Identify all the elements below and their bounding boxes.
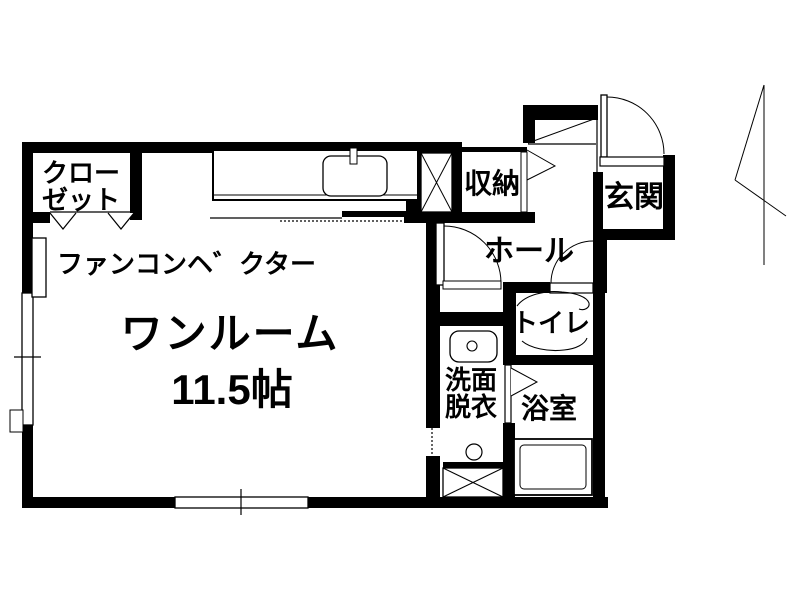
storage-label: 収納 (464, 167, 520, 199)
wall-segment (503, 355, 593, 365)
entrance-label: 玄関 (604, 180, 664, 214)
wall-segment (22, 425, 33, 508)
toilet-label: トイレ (512, 308, 590, 338)
wall-segment (22, 497, 608, 508)
faucet-icon (350, 148, 357, 164)
main-room-door-leaf (436, 223, 444, 285)
kitchen-front-bar (342, 211, 425, 217)
washroom-door (443, 281, 501, 289)
wall-segment (593, 230, 605, 508)
closet-label-line2: ゼット (42, 185, 120, 215)
entrance-threshold (600, 157, 664, 166)
fan-convector-label: ファンコンヘ゛クター (57, 249, 316, 279)
fan-convector-unit (32, 238, 46, 297)
washroom-label-line1: 洗面 (445, 365, 497, 395)
bathtub-inner (520, 445, 586, 489)
bathroom-label: 浴室 (521, 392, 577, 424)
wall-segment (593, 229, 675, 240)
wall-segment (462, 147, 527, 152)
storage-door (521, 152, 527, 212)
washbasin-drain-icon (467, 341, 477, 351)
wall-segment (523, 120, 535, 143)
wall-segment (130, 142, 142, 220)
window-left-endcap (10, 410, 23, 432)
wall-segment (593, 172, 603, 229)
refrigerator-space (421, 153, 452, 212)
entrance-door-leaf (601, 95, 607, 157)
vanity-counter-bar (433, 312, 507, 326)
closet-label-line1: クロー (42, 158, 120, 188)
wall-segment (663, 155, 675, 240)
plan-background (0, 0, 800, 600)
floor-plan-drawing: ワンルーム 11.5帖 ファンコンヘ゛クター クロー ゼット 収納 玄関 ホール… (0, 0, 800, 600)
window-left (22, 293, 33, 425)
wall-segment (443, 462, 503, 468)
washroom-label-line2: 脱衣 (445, 392, 497, 422)
bathroom-door (505, 365, 511, 423)
wall-segment (452, 153, 462, 212)
hall-label: ホール (484, 235, 574, 268)
main-room-label: ワンルーム (121, 310, 340, 357)
floor-plan-page: ワンルーム 11.5帖 ファンコンヘ゛クター クロー ゼット 収納 玄関 ホール… (0, 0, 800, 600)
main-room-size-label: 11.5帖 (171, 366, 292, 413)
wall-opening (426, 428, 440, 456)
wall-segment (523, 105, 598, 120)
floor-drain-icon (466, 444, 482, 460)
